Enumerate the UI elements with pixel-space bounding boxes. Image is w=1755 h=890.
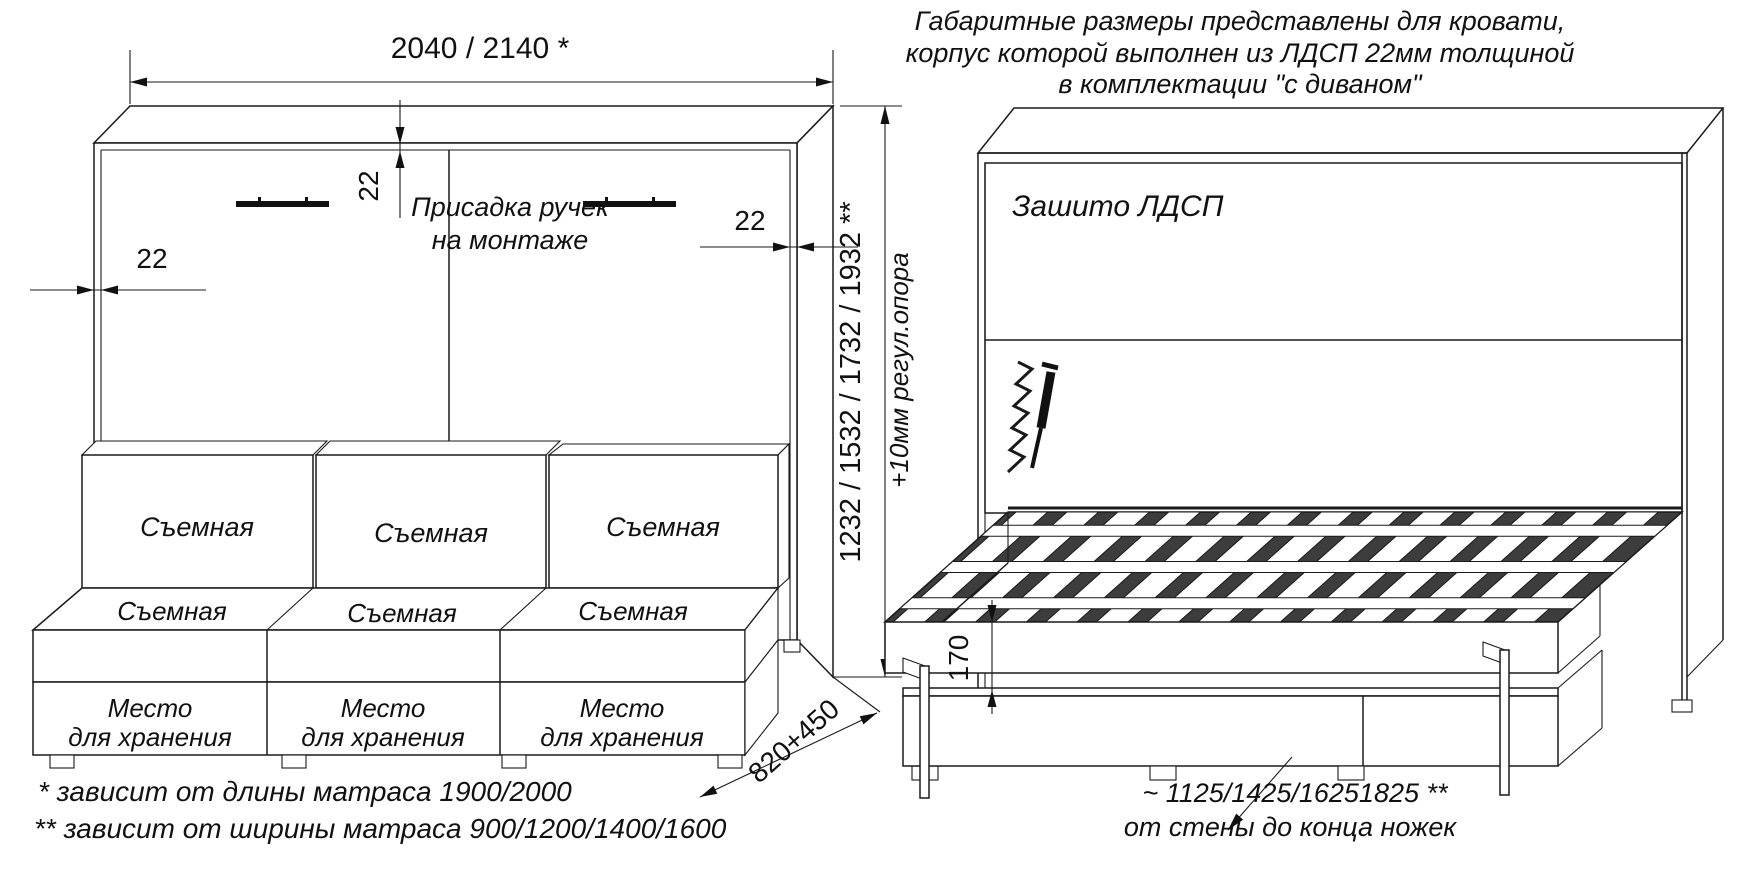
bench-front bbox=[903, 696, 1558, 766]
panel-note: Зашито ЛДСП bbox=[1012, 190, 1224, 223]
sofa-foot bbox=[282, 755, 306, 768]
right-thickness-label: 22 bbox=[734, 205, 765, 236]
cabinet-top-face bbox=[978, 108, 1723, 153]
storage-label-1b: для хранения bbox=[68, 722, 232, 752]
seat-cushion-label-1: Съемная bbox=[117, 596, 227, 626]
left-thickness-label: 22 bbox=[136, 243, 167, 274]
bed-leg-left bbox=[920, 666, 929, 798]
height-dimension: 1232 / 1532 / 1732 / 1932 ** +10мм регул… bbox=[832, 106, 914, 677]
seat-cushion-label-2: Съемная bbox=[347, 598, 457, 628]
seat-cushion-label-3: Съемная bbox=[578, 596, 688, 626]
cabinet-top-face bbox=[94, 106, 833, 143]
back-cushion-side bbox=[778, 444, 789, 588]
sofa-foot bbox=[50, 755, 74, 768]
height-dimension-label: 1232 / 1532 / 1732 / 1932 ** bbox=[835, 201, 867, 562]
storage-label-3b: для хранения bbox=[540, 722, 704, 752]
sofa-foot bbox=[502, 755, 526, 768]
bed-leg-right bbox=[1500, 650, 1509, 795]
handles-note-line2: на монтаже bbox=[432, 225, 589, 255]
storage-label-2a: Место bbox=[341, 693, 426, 723]
bench-top-rail bbox=[903, 688, 1558, 696]
legs-distance-line2: от стены до конца ножек bbox=[1124, 812, 1457, 842]
seat-front-band bbox=[33, 630, 745, 682]
back-cushion-label-1: Съемная bbox=[140, 512, 254, 542]
cabinet-foot bbox=[784, 640, 800, 652]
storage-label-1a: Место bbox=[108, 693, 193, 723]
header-note-line1: Габаритные размеры представлены для кров… bbox=[915, 6, 1566, 36]
back-cushion-label-2: Съемная bbox=[374, 518, 488, 548]
technical-drawing-page: 2040 / 2140 * 22 22 22 Присадка ручек на… bbox=[0, 0, 1755, 885]
closed-view-drawing: 2040 / 2140 * 22 22 22 Присадка ручек на… bbox=[30, 32, 914, 844]
top-thickness-label: 22 bbox=[353, 170, 384, 201]
handles-note-line1: Присадка ручек bbox=[411, 192, 610, 222]
sofa-foot bbox=[718, 755, 742, 768]
legs-distance-line1: ~ 1125/1425/16251825 ** bbox=[1142, 778, 1449, 808]
footnote-1: * зависит от длины матраса 1900/2000 bbox=[38, 776, 572, 807]
back-cushion-label-3: Съемная bbox=[606, 512, 720, 542]
storage-label-3a: Место bbox=[580, 693, 665, 723]
height-dimension-note: +10мм регул.опора bbox=[884, 252, 914, 487]
cabinet-foot bbox=[1672, 700, 1692, 712]
bed-frame-front bbox=[885, 622, 1558, 673]
open-view-drawing: Габаритные размеры представлены для кров… bbox=[885, 6, 1723, 842]
frame-height-label: 170 bbox=[943, 635, 974, 682]
wall-bed-technical-drawing: 2040 / 2140 * 22 22 22 Присадка ручек на… bbox=[0, 0, 1755, 885]
cabinet-right-side bbox=[797, 106, 833, 677]
storage-label-2b: для хранения bbox=[301, 722, 465, 752]
header-note-line2: корпус которой выполнен из ЛДСП 22мм тол… bbox=[906, 38, 1575, 68]
floor-edge-line bbox=[833, 677, 880, 712]
header-note-line3: в комплектации "с диваном" bbox=[1058, 69, 1423, 99]
width-dimension: 2040 / 2140 * bbox=[130, 32, 833, 104]
width-dimension-label: 2040 / 2140 * bbox=[391, 32, 570, 65]
footnote-2: ** зависит от ширины матраса 900/1200/14… bbox=[34, 813, 727, 844]
